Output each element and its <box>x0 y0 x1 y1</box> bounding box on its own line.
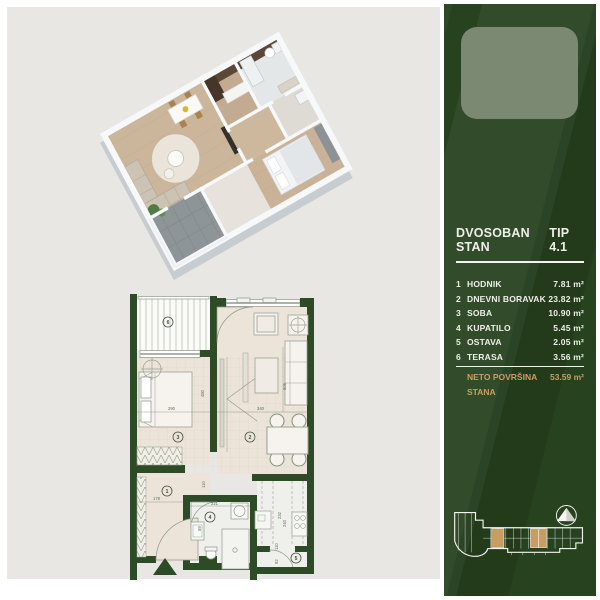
logo-placeholder <box>461 27 578 119</box>
room-area: 10.90 m² <box>548 306 584 321</box>
dim-hodnik-h: 110 <box>201 481 206 488</box>
dim-kuhinja-2: 240 <box>282 519 287 527</box>
room-area: 5.45 m² <box>553 321 584 336</box>
room-name: SOBA <box>467 306 548 321</box>
total-label: NETO POVRŠINA STANA <box>456 370 550 400</box>
dim-soba-w: 290 <box>168 406 176 411</box>
room-row-soba: 3 SOBA 10.90 m² <box>456 306 584 321</box>
room-row-hodnik: 1 HODNIK 7.81 m² <box>456 277 584 292</box>
room-row-ostava: 5 OSTAVA 2.05 m² <box>456 335 584 350</box>
room-badge-kupatilo: 4 <box>209 515 212 521</box>
room-num: 5 <box>456 335 467 350</box>
room-row-dnevni-boravak: 2 DNEVNI BORAVAK 23.82 m² <box>456 292 584 307</box>
dim-kuhinja-1: 232 <box>277 511 282 519</box>
room-badge-dnevni: 2 <box>249 435 252 441</box>
title-row: DVOSOBAN STAN TIP 4.1 <box>456 226 584 263</box>
room-badge-soba: 3 <box>177 435 180 441</box>
room-badge-ostava: 5 <box>295 556 298 562</box>
bed <box>139 372 192 427</box>
north-arrow-icon <box>556 506 576 526</box>
floor-plan-2d: 290 340 178 221 480 506 110 232 240 59 1… <box>119 285 351 585</box>
hall-closet <box>137 477 146 557</box>
room-name: TERASA <box>467 350 553 365</box>
room-list: 1 HODNIK 7.81 m² 2 DNEVNI BORAVAK 23.82 … <box>456 277 584 400</box>
total-row: NETO POVRŠINA STANA 53.59 m² <box>456 370 584 400</box>
building-footprint <box>449 501 591 581</box>
dim-ostava-w: 110 <box>274 543 279 550</box>
info-sidebar: DVOSOBAN STAN TIP 4.1 1 HODNIK 7.81 m² 2… <box>444 4 596 596</box>
room-name: HODNIK <box>467 277 553 292</box>
room-num: 4 <box>456 321 467 336</box>
room-area: 2.05 m² <box>553 335 584 350</box>
dim-sink: 59 <box>197 526 202 531</box>
building-footprint-svg <box>449 501 591 581</box>
dim-dnevni-w: 340 <box>257 406 265 411</box>
room-name: KUPATILO <box>467 321 553 336</box>
plan-canvas: 290 340 178 221 480 506 110 232 240 59 1… <box>7 7 440 579</box>
room-row-kupatilo: 4 KUPATILO 5.45 m² <box>456 321 584 336</box>
wardrobe <box>137 447 182 465</box>
room-area: 23.82 m² <box>548 292 584 307</box>
room-name: DNEVNI BORAVAK <box>467 292 548 307</box>
room-area: 7.81 m² <box>553 277 584 292</box>
floorplan-sheet: { "sidebar": { "title": "DVOSOBAN STAN",… <box>0 0 600 600</box>
dim-kupatilo-w: 221 <box>211 501 219 506</box>
apartment-type-title: DVOSOBAN STAN <box>456 226 549 254</box>
iso-render-svg <box>62 17 382 285</box>
iso-render <box>62 17 382 285</box>
room-name: OSTAVA <box>467 335 553 350</box>
room-row-terasa: 6 TERASA 3.56 m² <box>456 350 584 365</box>
room-num: 6 <box>456 350 467 365</box>
room-badge-hodnik: 1 <box>166 489 169 495</box>
room-badge-terasa: 6 <box>167 320 170 326</box>
room-num: 1 <box>456 277 467 292</box>
iso-apartment <box>104 36 349 267</box>
dim-soba-h: 480 <box>200 389 205 397</box>
apartment-info: DVOSOBAN STAN TIP 4.1 1 HODNIK 7.81 m² 2… <box>456 226 584 400</box>
room-num: 2 <box>456 292 467 307</box>
room-area: 3.56 m² <box>553 350 584 365</box>
dim-hodnik-w: 178 <box>153 496 161 501</box>
dim-dnevni-h: 506 <box>282 382 287 390</box>
terrace-floor <box>137 296 210 350</box>
apartment-tip-label: TIP 4.1 <box>549 226 584 254</box>
floor-plan-svg: 290 340 178 221 480 506 110 232 240 59 1… <box>119 285 351 585</box>
list-divider <box>456 366 584 367</box>
room-num: 3 <box>456 306 467 321</box>
dim-ostava-h: 92 <box>274 559 279 564</box>
total-area: 53.59 m² <box>550 370 584 385</box>
